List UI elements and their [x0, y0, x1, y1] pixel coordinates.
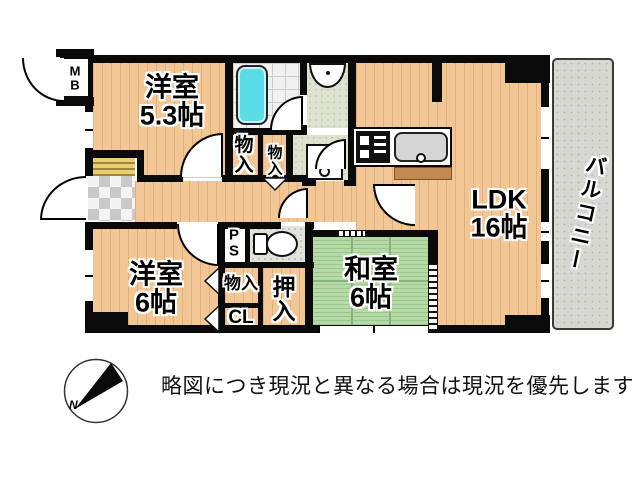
- meter-box-door-swing: [22, 58, 64, 102]
- wall: [505, 315, 550, 333]
- ps-label: PS: [225, 227, 242, 259]
- room-size: 6帖: [344, 284, 398, 312]
- toilet-bowl: [266, 231, 298, 257]
- wall: [286, 135, 293, 180]
- window: [541, 262, 549, 300]
- compass: [61, 356, 131, 426]
- sliding-door-washitsu-top: [336, 230, 366, 237]
- kitchen-faucet: [416, 153, 426, 163]
- wall: [428, 230, 438, 264]
- wall: [56, 49, 94, 57]
- room-size: 6帖: [129, 289, 183, 317]
- folding-door-mark-down: [262, 177, 288, 192]
- wall: [505, 55, 550, 83]
- western-room-6-label: 洋室 6帖: [129, 261, 183, 318]
- wall: [90, 150, 138, 158]
- stove: [356, 131, 390, 163]
- window: [85, 110, 93, 150]
- fusuma-washitsu-ldk: [428, 264, 438, 332]
- wall: [541, 171, 549, 220]
- room-name: LDK: [470, 186, 527, 214]
- wall: [88, 55, 550, 63]
- room-name: 和室: [344, 256, 398, 284]
- room-name: 洋室: [129, 261, 183, 289]
- window: [541, 220, 549, 243]
- room-size: 5.3帖: [140, 102, 205, 130]
- room-size: 16帖: [470, 214, 527, 242]
- hallway-floor: [135, 181, 360, 222]
- wall: [300, 62, 307, 95]
- window: [541, 105, 549, 171]
- floorplan-canvas: 洋室 5.3帖 LDK 16帖 和室 6帖 洋室 6帖 バルコニー 物入 物入 …: [0, 0, 640, 480]
- ldk-label: LDK 16帖: [470, 186, 527, 243]
- entrance-tile-floor: [88, 176, 136, 221]
- compass-north-label: N: [69, 398, 78, 412]
- cl-label: CL: [228, 308, 253, 328]
- wall: [137, 150, 144, 178]
- entrance-door-swing: [40, 176, 86, 220]
- washbasin-drain: [326, 71, 330, 75]
- folding-door-mark-left: [203, 267, 220, 296]
- oshiire-label: 押入: [271, 275, 297, 323]
- wall: [258, 268, 263, 333]
- folding-door-mark-left: [203, 305, 220, 334]
- wall: [364, 230, 433, 237]
- western-room-53-label: 洋室 5.3帖: [140, 74, 205, 131]
- wall: [92, 222, 177, 229]
- wall: [218, 262, 314, 268]
- kitchen-counter-wood: [394, 167, 452, 180]
- storage3-label: 物入: [224, 275, 258, 293]
- room-name: 洋室: [140, 74, 205, 102]
- entrance-step-mat: [93, 157, 135, 176]
- wall: [541, 243, 549, 262]
- wall: [137, 175, 183, 182]
- wall: [432, 62, 442, 102]
- storage1-label: 物入: [233, 136, 255, 176]
- wall: [85, 102, 93, 110]
- meter-box-label: MB: [68, 64, 83, 91]
- window: [318, 326, 430, 333]
- disclaimer-text: 略図につき現況と異なる場合は現況を優先します: [161, 370, 634, 400]
- wall: [245, 226, 250, 262]
- window: [85, 248, 93, 303]
- wall: [541, 83, 549, 107]
- wall: [225, 62, 233, 135]
- wall: [310, 230, 338, 237]
- wall: [344, 180, 350, 186]
- japanese-room-label: 和室 6帖: [344, 256, 398, 313]
- bathtub: [236, 65, 268, 125]
- wall: [258, 135, 263, 175]
- storage2-label: 物入: [266, 145, 283, 177]
- wall: [305, 222, 313, 333]
